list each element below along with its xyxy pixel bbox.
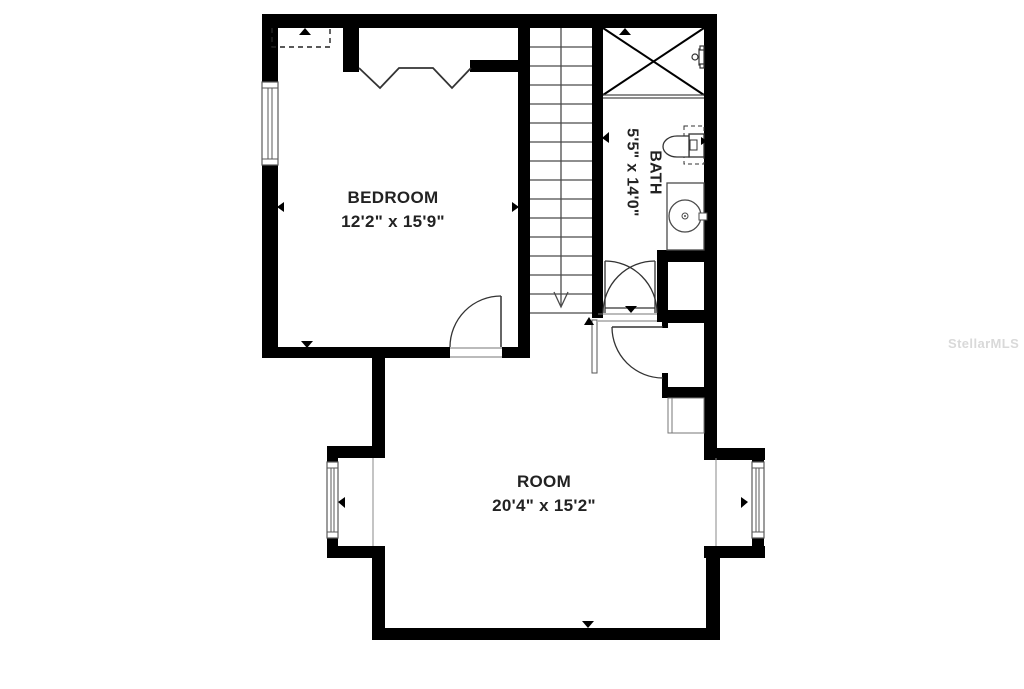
wall-closet-stub [343, 28, 359, 72]
marker-triangle-icon [602, 132, 609, 143]
stair-railing [592, 320, 597, 373]
window-icon-room-right-dormer [752, 462, 764, 538]
walls [262, 14, 765, 640]
stairs-icon [530, 28, 592, 313]
wall-left-lower [372, 558, 385, 628]
wall-right-upper [704, 14, 717, 448]
wall-left-dormer-bottom [327, 546, 385, 558]
marker-triangle-icon [301, 341, 313, 348]
marker-triangle-icon [512, 202, 519, 212]
marker-triangle-icon [277, 202, 284, 212]
wall-bedroom-top-right [470, 60, 518, 72]
wall-closetA-top [668, 250, 704, 262]
window-icon-bedroom-left [262, 82, 278, 165]
wall-bottom [372, 628, 720, 640]
bedroom-name: BEDROOM [293, 186, 493, 210]
wall-left-stub [372, 358, 385, 455]
sink-vanity-icon [667, 183, 707, 250]
marker-triangle-icon [625, 306, 637, 313]
door-icon-bedroom [450, 296, 502, 358]
wall-stair-right [592, 28, 603, 318]
room-dimensions: 20'4" x 15'2" [444, 494, 644, 518]
marker-triangle-icon [299, 28, 311, 35]
bedroom-label: BEDROOM 12'2" x 15'9" [293, 186, 493, 234]
wall-closetB-bottom [662, 387, 704, 398]
wall-bedroom-left-upper [262, 28, 278, 82]
bath-label: BATH 5'5" x 14'0" [620, 128, 667, 218]
window-icon-room-left-dormer [327, 462, 338, 538]
bedroom-dimensions: 12'2" x 15'9" [293, 210, 493, 234]
wall-left-window-jamb-top [327, 448, 338, 462]
marker-triangle-icon [338, 497, 345, 508]
wall-bedroom-left-lower [262, 165, 278, 358]
bath-name: BATH [644, 128, 667, 218]
wall-right-window-jamb-top [752, 448, 764, 462]
floor-plan-canvas: BEDROOM 12'2" x 15'9" BATH 5'5" x 14'0" … [0, 0, 1024, 689]
door-icon-bath [598, 261, 657, 322]
room-name: ROOM [444, 470, 644, 494]
watermark: StellarMLS [948, 336, 1019, 351]
wall-right-lower [706, 558, 720, 640]
marker-triangle-icon [582, 621, 594, 628]
toilet-icon [663, 126, 704, 164]
wall-bedroom-bottom-left [262, 347, 450, 358]
wall-closetA-stub [662, 262, 668, 273]
door-icon-closet [612, 327, 663, 378]
wall-markers [277, 28, 748, 628]
bath-dimensions: 5'5" x 14'0" [621, 128, 644, 218]
wall-right-dormer-bottom [704, 546, 765, 558]
attic-access-dashed-outline [272, 28, 330, 47]
marker-triangle-icon [619, 28, 631, 35]
bifold-door-icon [359, 68, 471, 88]
shower-icon [603, 28, 704, 98]
floor-plan-drawing [0, 0, 1024, 689]
storage-nook-outline [668, 398, 704, 433]
shower-valve-icon [692, 46, 704, 68]
wall-closetA-bottom [662, 310, 704, 323]
wall-stair-left [518, 28, 530, 358]
room-label: ROOM 20'4" x 15'2" [444, 470, 644, 518]
marker-triangle-icon [741, 497, 748, 508]
wall-top [262, 14, 717, 28]
